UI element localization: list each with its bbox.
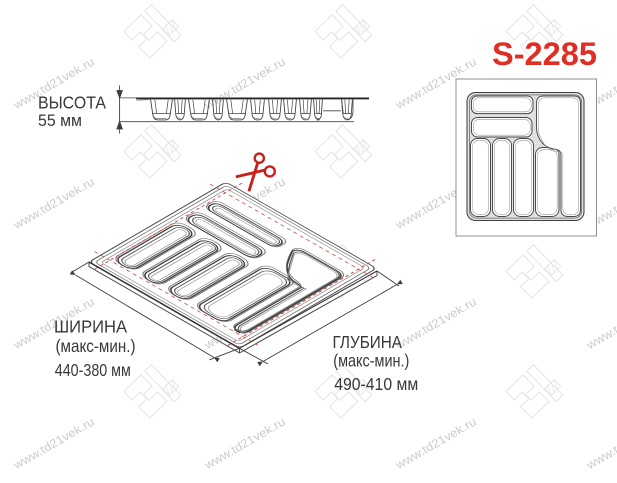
svg-text:55 мм: 55 мм [38,111,82,130]
svg-text:ШИРИНА: ШИРИНА [54,317,127,337]
svg-text:440-380 мм: 440-380 мм [55,360,131,380]
svg-text:(макс-мин.): (макс-мин.) [333,350,409,370]
svg-text:490-410 мм: 490-410 мм [334,374,418,394]
svg-text:(макс-мин.): (макс-мин.) [56,336,136,356]
svg-text:ВЫСОТА: ВЫСОТА [38,93,106,113]
svg-text:S-2285: S-2285 [492,36,597,72]
svg-text:ГЛУБИНА: ГЛУБИНА [333,332,403,352]
